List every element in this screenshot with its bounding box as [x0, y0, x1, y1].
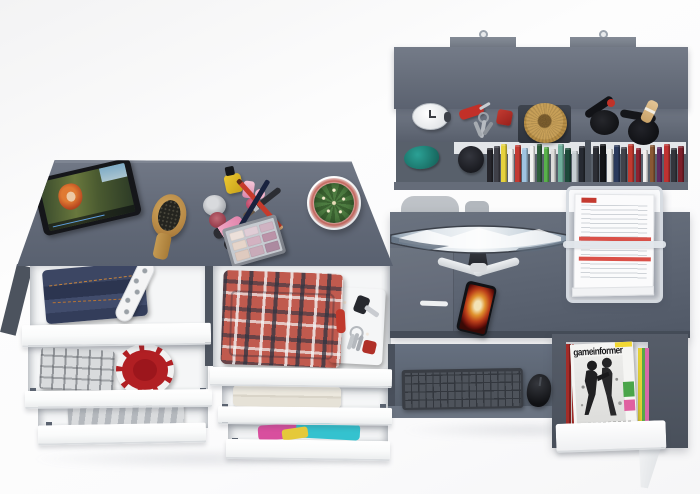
key-ring — [472, 112, 498, 140]
book-spine — [628, 144, 634, 182]
gray-plaid-shirt — [39, 347, 115, 393]
hairbrush — [142, 191, 194, 262]
palette-inner — [225, 218, 282, 264]
table-tennis-ball — [607, 99, 615, 107]
eyeshadow-pan — [264, 240, 280, 252]
drawer-front-right-1 — [210, 367, 392, 388]
book-spine — [579, 146, 585, 182]
shelf-divider — [585, 140, 591, 184]
jeans-stitch-line — [49, 275, 136, 287]
magazine-yellow-banner — [615, 341, 632, 347]
letter-tray — [566, 186, 663, 303]
clock-side — [444, 112, 451, 122]
book-spine — [487, 148, 493, 182]
drawer-front-left-3 — [38, 423, 206, 446]
dresser-top-surface — [17, 160, 393, 266]
red-tag — [362, 339, 378, 355]
cabinet-handle — [420, 301, 448, 307]
magazine-stack-edges — [638, 348, 649, 432]
book-row-left — [487, 144, 585, 182]
book-spine — [494, 146, 500, 182]
book-spine — [530, 146, 536, 182]
clock-hand — [429, 116, 436, 118]
magazine-cover-photo — [574, 355, 626, 423]
tablet-screen — [39, 163, 136, 232]
key-blade — [364, 305, 380, 318]
cover-figures — [574, 355, 626, 423]
book-spine — [664, 144, 670, 182]
tray-acrylic-rail — [563, 241, 666, 248]
book-spine — [515, 145, 521, 182]
book-spine — [544, 147, 550, 182]
game-informer-magazine: gameinformer — [570, 341, 637, 427]
cactus-dots — [314, 183, 354, 223]
book-spine — [636, 148, 642, 182]
book-spine — [671, 148, 677, 182]
straw-hat — [524, 103, 567, 143]
eyeshadow-pan — [234, 249, 250, 261]
book-spine — [593, 146, 599, 182]
document-logo — [581, 198, 596, 203]
document-red-band — [579, 257, 651, 261]
book-spine — [614, 145, 620, 182]
book-spine — [522, 148, 528, 182]
desk-drawer-front — [556, 420, 667, 453]
book-spine — [607, 149, 613, 182]
red-hat-center — [133, 359, 157, 381]
drawer-front-left-2 — [25, 389, 212, 409]
teal-cap — [403, 144, 441, 172]
book-spine — [551, 149, 557, 182]
alarm-clock — [412, 103, 449, 130]
table-tennis-paddle — [628, 118, 659, 145]
hairbrush-handle — [152, 232, 172, 261]
book-spine — [558, 144, 564, 182]
folded-towel — [233, 385, 341, 408]
book-spine — [650, 145, 656, 182]
hutch-top-panel — [394, 47, 688, 109]
book-spine — [657, 147, 663, 182]
book-spine — [508, 149, 514, 182]
red-keychain-box — [496, 109, 513, 126]
dresser-back-edge — [55, 160, 352, 163]
cactus-pot — [307, 176, 361, 230]
nail-polish-cap — [224, 166, 235, 177]
keyboard-keys — [404, 370, 521, 407]
movie-sky — [99, 163, 127, 182]
book-spine — [565, 148, 571, 182]
book-spine — [621, 147, 627, 182]
desk-drawer-unit: gameinformer — [552, 334, 688, 448]
book-row-right — [593, 144, 685, 182]
keyboard — [402, 368, 524, 410]
paper-sheet-edge — [572, 286, 654, 296]
leather-organizer — [328, 287, 386, 366]
curved-monitor — [389, 216, 569, 262]
drawer-front-right-2 — [218, 406, 392, 426]
book-spine — [678, 146, 684, 182]
magazine-pink-label — [624, 399, 636, 411]
table-tennis-paddle — [590, 110, 619, 135]
book-spine — [501, 144, 507, 182]
eyeshadow-pan — [249, 245, 265, 257]
eyeshadow-pans — [228, 221, 279, 261]
drawer-front-left-1 — [22, 323, 211, 348]
monitor-base-joint — [470, 263, 487, 272]
furniture-render: gameinformer — [0, 0, 700, 494]
drawer-front-right-3 — [226, 439, 390, 461]
book-spine — [537, 144, 543, 182]
tablet — [32, 157, 142, 236]
magazine-green-label — [623, 381, 635, 397]
pocket-knife — [336, 309, 346, 333]
book-spine — [572, 151, 578, 182]
plaid-shirt-fold — [229, 290, 335, 360]
book-spine — [643, 150, 649, 182]
book-spine — [600, 144, 606, 182]
red-patterned-hat — [116, 344, 174, 396]
hutch-book-compartment — [396, 142, 688, 184]
red-plaid-shirts — [220, 270, 343, 368]
